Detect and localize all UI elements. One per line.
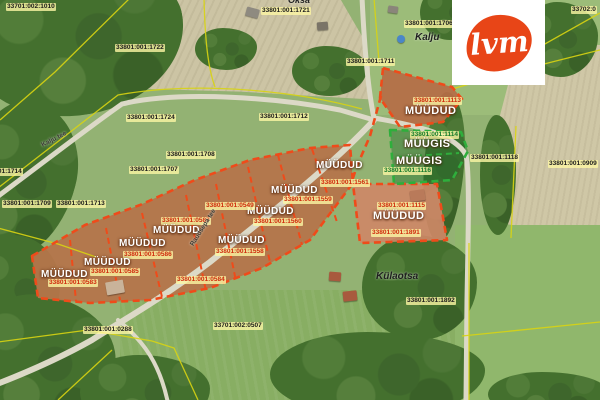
sold-parcel-number: 33801:001:1115 (377, 202, 426, 210)
cadastral-label: 33801:001:1721 (261, 7, 311, 15)
sold-status-label: MÜÜDUD (405, 105, 456, 117)
forsale-parcel-number: 33801:001:1116 (383, 167, 432, 175)
cadastral-label: 33801:001:1118 (470, 154, 519, 162)
sold-parcel-number: 33801:001:1560 (253, 218, 303, 226)
sold-parcel-number: 33801:001:1113 (413, 97, 462, 105)
sold-status-label: MÜÜDUD (119, 238, 166, 249)
pool (397, 35, 405, 43)
cadastral-label: 33801:001:1722 (115, 44, 165, 52)
cadastral-label: 33801:001:1712 (259, 113, 309, 121)
sold-status-label: MÜÜDUD (218, 235, 265, 246)
sold-parcel-number: 33801:001:1559 (283, 196, 333, 204)
building (343, 290, 358, 301)
lvm-logo: lvm (452, 0, 545, 85)
sold-parcel-number: 33801:001:0583 (48, 279, 98, 287)
sold-parcel-number: 33801:001:0584 (176, 276, 226, 284)
cadastral-label-edge: 33702:0 (571, 6, 597, 14)
cadastral-label: 33701:002:0507 (213, 322, 263, 330)
map-canvas[interactable]: 33701:002:1010 33801:001:1722 33801:001:… (0, 0, 600, 400)
sold-status-label: MÜÜDUD (271, 185, 318, 196)
cadastral-label: 33801:001:1709 (2, 200, 52, 208)
lvm-logo-text: lvm (468, 26, 528, 59)
place-name-kalju: Kalju (415, 32, 439, 43)
cadastral-label: 33801:001:1708 (166, 151, 216, 159)
place-name-kulaotsa: Külaotsa (376, 271, 418, 282)
lvm-logo-blob: lvm (463, 11, 534, 74)
building (329, 272, 342, 282)
cadastral-label: 33801:001:1724 (126, 114, 176, 122)
sold-status-label: MÜÜDUD (84, 257, 131, 268)
sold-status-label: MÜÜDUD (153, 225, 200, 236)
sold-parcel-number: 33801:001:1891 (371, 229, 421, 237)
cadastral-label: 33801:001:1707 (129, 166, 179, 174)
sold-parcel-number: 33801:001:0585 (90, 268, 140, 276)
sold-status-label: MÜÜDUD (316, 160, 363, 171)
cadastral-label: 33801:001:1706 (404, 20, 454, 28)
place-name-oksa: Oksa (288, 0, 310, 5)
sold-parcel-number: 33801:001:1561 (320, 179, 370, 187)
cadastral-label: 33801:001:0909 (548, 160, 598, 168)
cadastral-label: 33801:001:1713 (56, 200, 106, 208)
cadastral-label: 33801:001:1711 (346, 58, 395, 66)
sold-parcel-number: 33801:001:1558 (215, 248, 265, 256)
building (409, 189, 425, 202)
forsale-status-label: MÜÜGIS (396, 155, 442, 167)
cadastral-label: 33801:001:1714 (0, 168, 23, 176)
cadastral-label: 33801:001:1892 (406, 297, 456, 305)
cadastral-label: 33801:001:0288 (83, 326, 133, 334)
building (388, 5, 399, 13)
sold-status-label: MÜÜDUD (373, 210, 424, 222)
cadastral-label: 33701:002:1010 (6, 3, 56, 11)
building (317, 22, 329, 31)
forsale-status-label: MÜÜGIS (404, 138, 450, 150)
